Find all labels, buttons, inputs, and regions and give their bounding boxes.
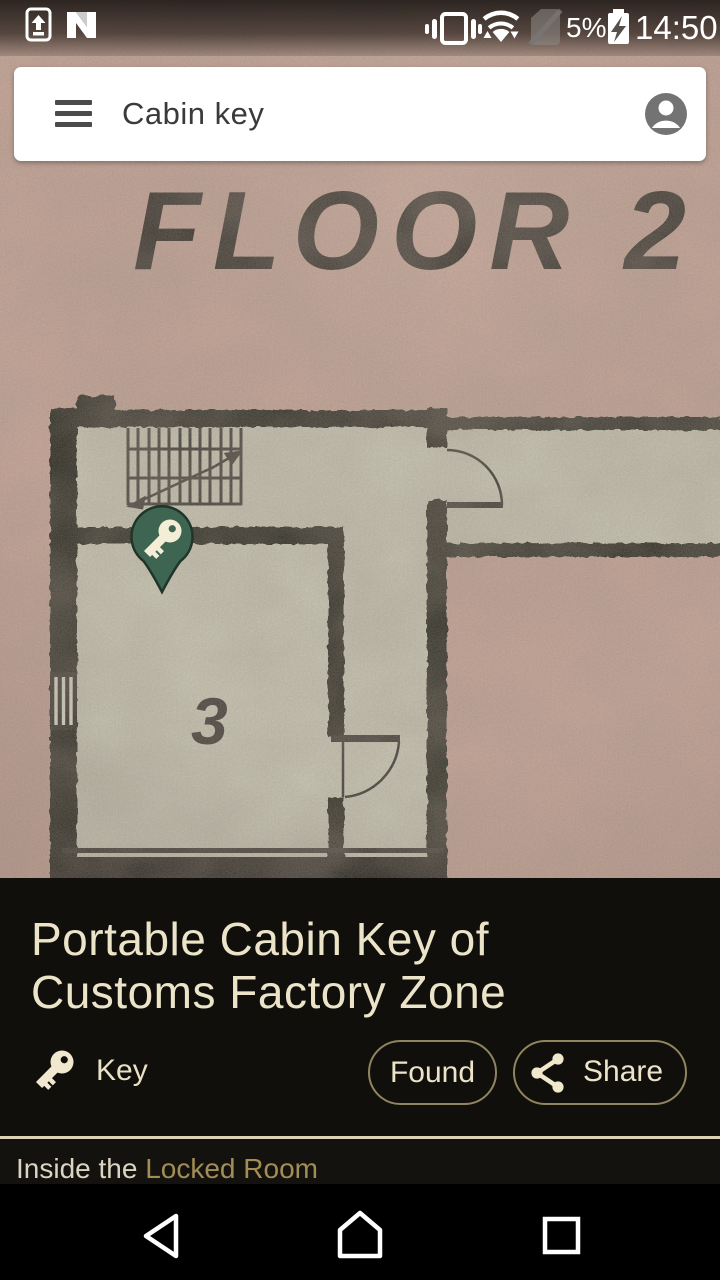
svg-text:14:50: 14:50 <box>635 9 718 46</box>
svg-text:5%: 5% <box>566 12 606 43</box>
